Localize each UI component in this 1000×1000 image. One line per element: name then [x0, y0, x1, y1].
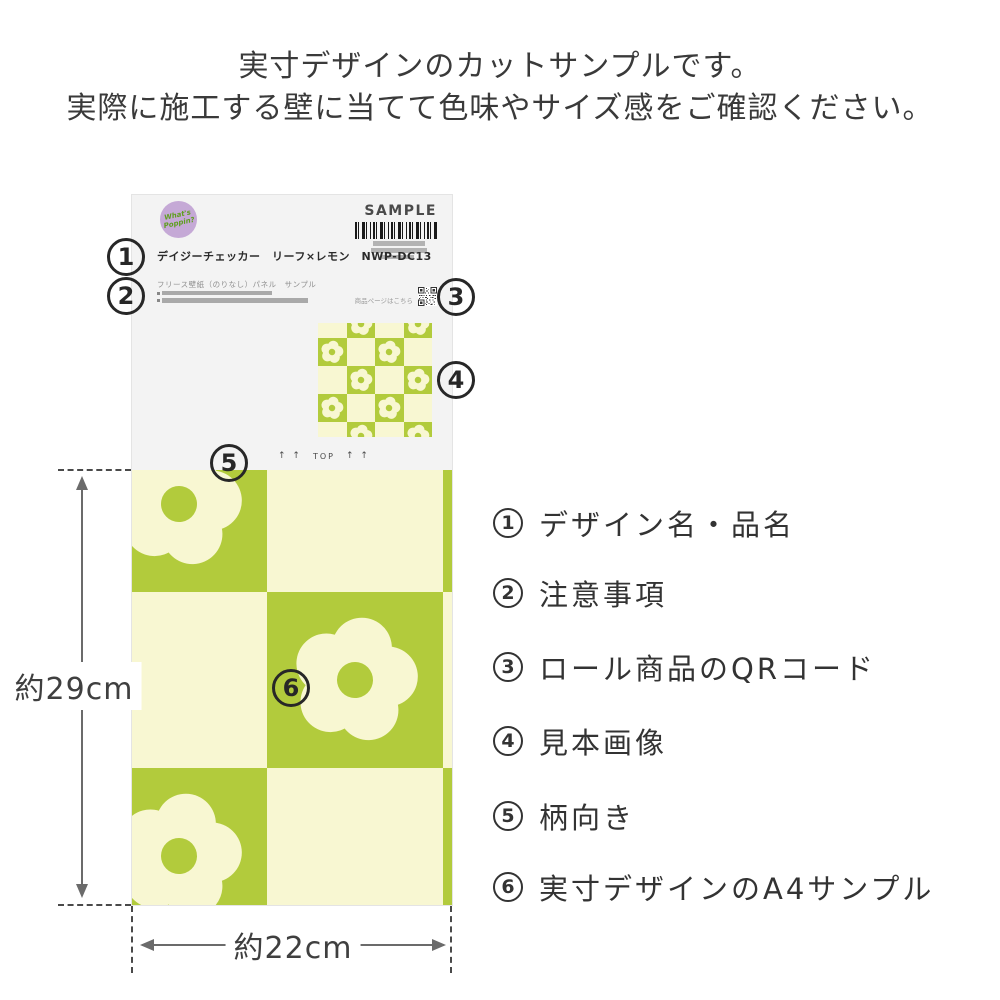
pattern-cell — [347, 394, 376, 422]
pattern-cell — [375, 366, 404, 394]
pattern-cell — [347, 338, 376, 366]
pattern-cell — [132, 592, 267, 768]
sample-label: SAMPLE — [364, 203, 437, 219]
flower-center — [414, 432, 422, 437]
legend-number-4: 4 — [493, 726, 523, 756]
arrow-down-icon — [76, 884, 88, 898]
preview-image — [318, 323, 432, 437]
note-line-redacted — [162, 291, 272, 295]
legend-label-4: 見本画像 — [539, 720, 667, 762]
product-name: デイジーチェッカー リーフ×レモン NWP-DC13 — [157, 248, 432, 264]
pattern-cell — [443, 470, 452, 592]
callout-6: 6 — [272, 669, 310, 707]
qr-caption: 商品ページはこちら — [337, 295, 413, 305]
legend-item-design-name: 1 デザイン名・品名 — [493, 507, 795, 539]
pattern-orientation-marker: ↑ ↑ TOP ↑ ↑ — [278, 451, 370, 461]
pattern-cell — [443, 592, 452, 768]
legend-item-pattern-direction: 5 柄向き — [493, 800, 635, 832]
up-arrows-icon: ↑ ↑ — [278, 451, 302, 461]
arrow-up-icon — [76, 476, 88, 490]
page-heading: 実寸デザインのカットサンプルです。 実際に施工する壁に当てて色味やサイズ感をご確… — [0, 46, 1000, 130]
page: 実寸デザインのカットサンプルです。 実際に施工する壁に当てて色味やサイズ感をご確… — [0, 0, 1000, 1000]
note-bullet — [157, 292, 160, 295]
pattern-cell — [375, 323, 404, 338]
legend-item-preview-image: 4 見本画像 — [493, 725, 667, 757]
pattern-cell — [443, 768, 452, 905]
legend-label-2: 注意事項 — [539, 572, 667, 614]
legend-label-5: 柄向き — [539, 795, 635, 837]
heading-line-2: 実際に施工する壁に当てて色味やサイズ感をご確認ください。 — [0, 88, 1000, 130]
legend-item-qr-code: 3 ロール商品のQRコード — [493, 651, 876, 683]
callout-1: 1 — [107, 238, 145, 276]
barcode-subline — [373, 241, 425, 246]
legend-item-a4-sample: 6 実寸デザインのA4サンプル — [493, 871, 934, 903]
note-line-redacted — [162, 298, 308, 303]
sample-paper: What's Poppin? SAMPLE デイジーチェッカー リーフ×レモン … — [132, 195, 452, 905]
pattern-cell — [318, 366, 347, 394]
callout-2: 2 — [107, 277, 145, 315]
callout-4: 4 — [437, 361, 475, 399]
brand-logo: What's Poppin? — [160, 201, 197, 238]
top-label: TOP — [313, 452, 335, 461]
heading-line-1: 実寸デザインのカットサンプルです。 — [0, 46, 1000, 88]
pattern-cell — [267, 470, 443, 592]
qr-code — [418, 287, 437, 306]
legend-number-2: 2 — [493, 578, 523, 608]
legend-label-6: 実寸デザインのA4サンプル — [539, 866, 934, 908]
legend-label-1: デザイン名・品名 — [539, 502, 795, 544]
legend-number-6: 6 — [493, 872, 523, 902]
callout-5: 5 — [210, 444, 248, 482]
width-dimension-label: 約22cm — [226, 921, 361, 969]
flower-center — [357, 432, 365, 437]
dimension-dash-top — [58, 469, 131, 471]
pattern-cell — [267, 768, 443, 905]
callout-3: 3 — [437, 278, 475, 316]
legend-label-3: ロール商品のQRコード — [539, 646, 876, 688]
arrow-right-icon — [432, 939, 446, 951]
pattern-cell — [404, 394, 433, 422]
arrow-left-icon — [140, 939, 154, 951]
note-bullet — [157, 299, 160, 302]
product-type: フリース壁紙（のりなし）パネル サンプル — [157, 279, 316, 290]
pattern-cell — [318, 323, 347, 338]
dimension-dash-bottom — [58, 904, 131, 906]
pattern-cell — [375, 422, 404, 437]
barcode — [355, 222, 437, 239]
legend-number-3: 3 — [493, 652, 523, 682]
brand-logo-text: What's Poppin? — [159, 208, 198, 230]
dimension-dash-left — [131, 906, 133, 973]
dimension-dash-right — [450, 906, 452, 973]
pattern-cell — [404, 338, 433, 366]
height-dimension-label: 約29cm — [7, 662, 142, 710]
legend-number-5: 5 — [493, 801, 523, 831]
pattern-cell — [318, 422, 347, 437]
legend-item-notes: 2 注意事項 — [493, 577, 667, 609]
legend-number-1: 1 — [493, 508, 523, 538]
up-arrows-icon: ↑ ↑ — [346, 451, 370, 461]
